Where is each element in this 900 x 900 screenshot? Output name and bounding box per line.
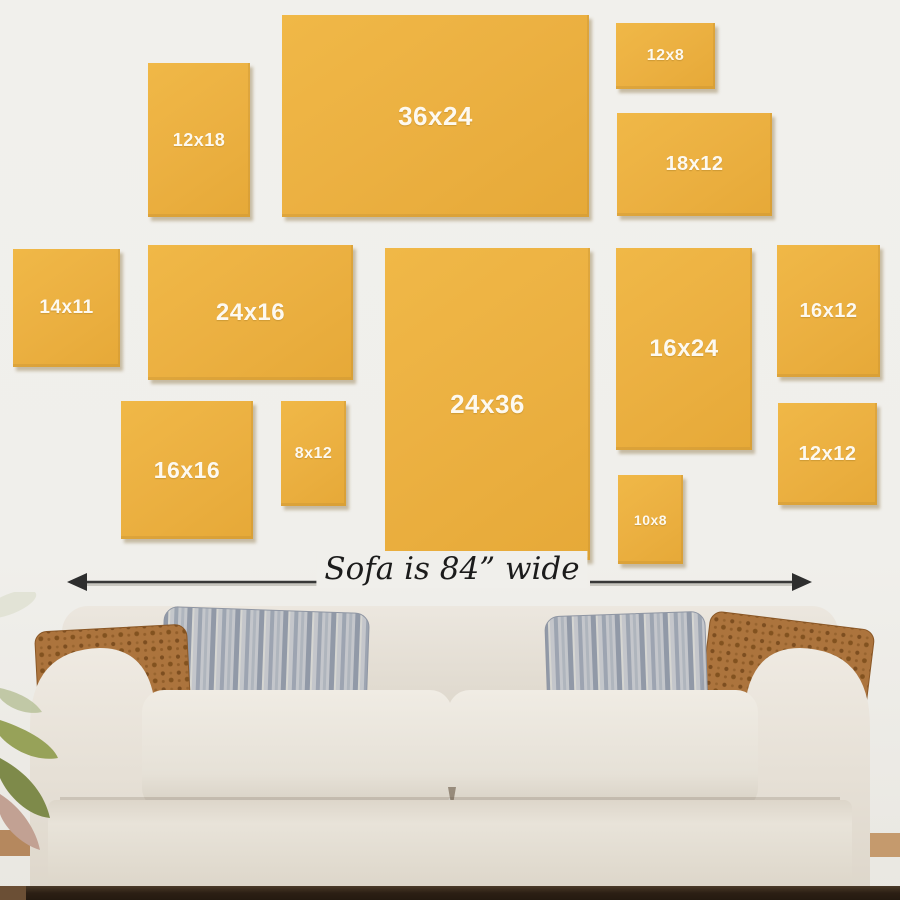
canvas-size-label: 36x24	[398, 101, 473, 132]
seat-cushion-right	[448, 690, 758, 810]
floor-edge-left	[0, 886, 28, 900]
canvas-size-label: 12x12	[798, 443, 856, 466]
canvas-size-label: 8x12	[295, 445, 333, 463]
canvas-size-label: 18x12	[665, 153, 723, 176]
canvas-size-label: 24x16	[216, 299, 285, 327]
canvas-frame-24x16: 24x16	[148, 245, 353, 380]
canvas-frame-8x12: 8x12	[281, 401, 346, 506]
sofa-base	[48, 800, 852, 895]
canvas-frame-24x36: 24x36	[385, 248, 590, 560]
canvas-frame-16x12: 16x12	[777, 245, 880, 377]
canvas-size-label: 10x8	[634, 512, 667, 528]
canvas-size-label: 14x11	[39, 297, 93, 319]
canvas-frame-18x12: 18x12	[617, 113, 772, 216]
canvas-frame-12x12: 12x12	[778, 403, 877, 505]
seat-cushion-left	[142, 690, 452, 810]
canvas-frame-14x11: 14x11	[13, 249, 120, 367]
canvas-size-label: 16x16	[154, 457, 220, 484]
arrow-head-left	[67, 573, 87, 591]
canvas-size-label: 16x12	[799, 300, 857, 323]
canvas-size-label: 12x8	[647, 47, 685, 65]
canvas-frame-16x16: 16x16	[121, 401, 253, 539]
canvas-frame-36x24: 36x24	[282, 15, 589, 217]
canvas-frame-12x18: 12x18	[148, 63, 250, 217]
canvas-frame-10x8: 10x8	[618, 475, 683, 564]
canvas-frame-16x24: 16x24	[616, 248, 752, 450]
canvas-size-label: 24x36	[450, 389, 525, 420]
floor-shadow	[26, 886, 900, 900]
arrow-head-right	[792, 573, 812, 591]
sofa-width-caption: Sofa is 84” wide	[316, 551, 587, 588]
sofa-photo	[0, 592, 900, 900]
canvas-size-label: 12x18	[173, 130, 226, 151]
canvas-frame-12x8: 12x8	[616, 23, 715, 89]
canvas-size-label: 16x24	[649, 335, 718, 363]
